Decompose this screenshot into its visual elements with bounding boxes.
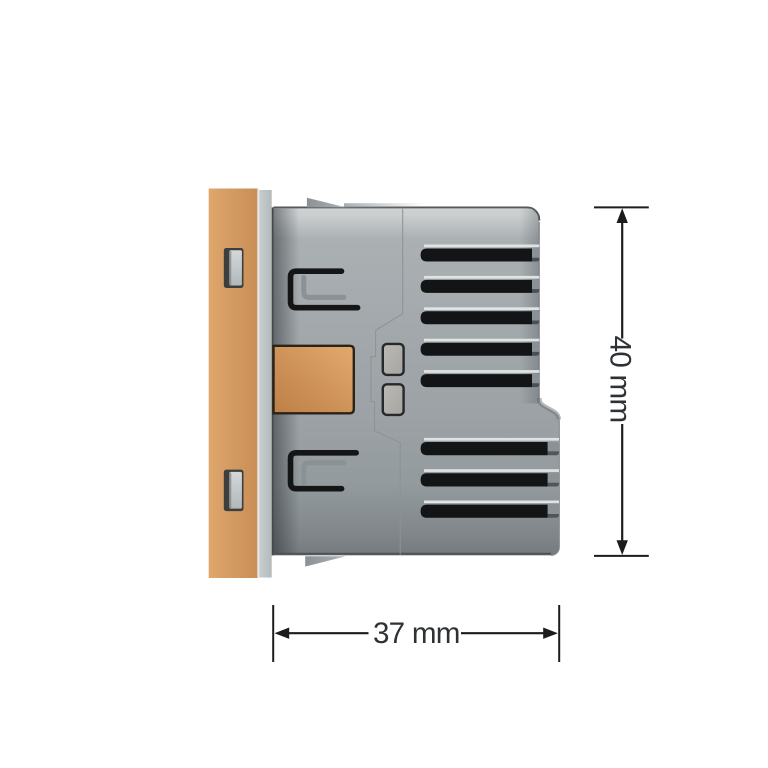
svg-text:37 mm: 37 mm	[373, 617, 460, 650]
svg-text:40 mm: 40 mm	[603, 336, 636, 423]
